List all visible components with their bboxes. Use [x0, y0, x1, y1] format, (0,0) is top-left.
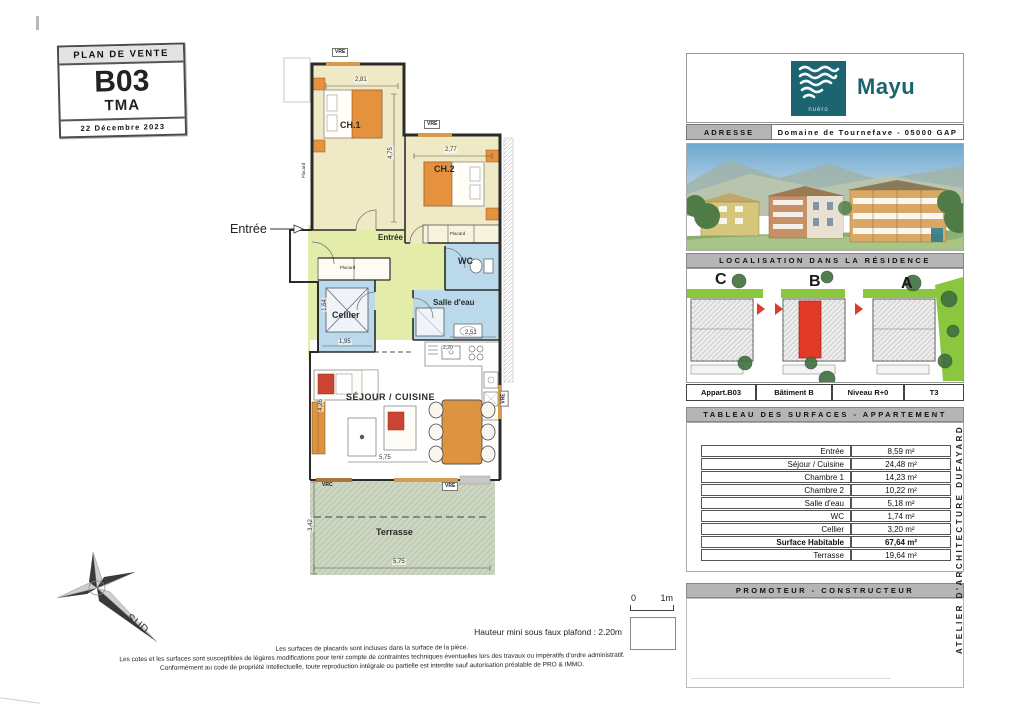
residence-rendering	[687, 144, 963, 250]
dim-ch1-height: 4,75	[388, 146, 394, 160]
address-label: ADRESSE	[686, 124, 772, 140]
surfaces-box: Entrée8,59 m² Séjour / Cuisine24,48 m² C…	[686, 422, 964, 572]
surface-label: Chambre 2	[701, 484, 851, 496]
surface-label: Salle d'eau	[701, 497, 851, 509]
table-row: Séjour / Cuisine24,48 m²	[701, 458, 951, 470]
scan-artifact	[0, 697, 40, 704]
surface-label: Cellier	[701, 523, 851, 535]
unit-number: B03	[59, 62, 184, 98]
plan-date: 22 Décembre 2023	[61, 116, 185, 136]
room-label-sejour: SÉJOUR / CUISINE	[346, 392, 435, 402]
scan-artifact	[691, 678, 891, 679]
title-block: PLAN DE VENTE B03 TMA 22 Décembre 2023	[57, 42, 187, 138]
waves-icon	[791, 61, 846, 107]
brand-name: Mayu	[857, 74, 915, 100]
dim-salle-eau-width: 2,51	[464, 330, 478, 336]
info-apartment: Appart.B03	[686, 384, 756, 401]
room-label-cellier: Cellier	[332, 310, 360, 320]
surface-value: 67,64 m²	[851, 536, 951, 548]
dim-cellier-height: 1,64	[322, 298, 328, 312]
info-building: Bâtiment B	[756, 384, 832, 401]
address-value: Domaine de Tournefave - 05000 GAP	[772, 124, 964, 140]
room-label-terrasse: Terrasse	[376, 527, 413, 537]
surfaces-header: TABLEAU DES SURFACES - APPARTEMENT	[686, 407, 964, 422]
surface-value: 14,23 m²	[851, 471, 951, 483]
dim-sejour-width: 5,75	[378, 455, 392, 461]
scale-bracket	[630, 605, 674, 611]
building-label-a: A	[901, 275, 913, 293]
surface-value: 3,20 m²	[851, 523, 951, 535]
window-tag-vre: VRE	[442, 482, 458, 491]
table-row: Cellier3,20 m²	[701, 523, 951, 535]
surface-label: Terrasse	[701, 549, 851, 561]
floor-plan: Entrée CH.1 CH.2 Entrée WC Salle d'eau C…	[228, 50, 540, 612]
dim-cellier-width: 1,95	[338, 339, 352, 345]
scale-one-meter: 1m	[660, 593, 673, 603]
logo-box: nuèro Mayu	[686, 53, 964, 123]
room-label-wc: WC	[458, 256, 473, 266]
room-label-ch1: CH.1	[340, 120, 361, 130]
surface-value: 5,18 m²	[851, 497, 951, 509]
building-label-c: C	[715, 271, 727, 289]
room-label-salle-eau: Salle d'eau	[433, 298, 474, 307]
table-row: Chambre 210,22 m²	[701, 484, 951, 496]
address-row: ADRESSE Domaine de Tournefave - 05000 GA…	[686, 124, 964, 140]
residence-photo	[686, 143, 964, 251]
surface-label: Séjour / Cuisine	[701, 458, 851, 470]
surface-value: 19,64 m²	[851, 549, 951, 561]
surface-value: 24,48 m²	[851, 458, 951, 470]
unit-variant: TMA	[60, 95, 184, 119]
logo-caption: nuèro	[791, 107, 846, 113]
siteplan: C B A	[686, 268, 964, 383]
siteplan-drawing	[687, 269, 963, 382]
info-level: Niveau R+0	[832, 384, 904, 401]
localisation-header: LOCALISATION DANS LA RÉSIDENCE	[686, 253, 964, 268]
plan-de-vente-sheet: PLAN DE VENTE B03 TMA 22 Décembre 2023	[0, 0, 1024, 723]
scale-bar: 0 1m	[630, 593, 674, 611]
surface-label: Chambre 1	[701, 471, 851, 483]
surfaces-table: Entrée8,59 m² Séjour / Cuisine24,48 m² C…	[701, 444, 951, 562]
scan-artifact	[36, 16, 39, 30]
placard-label: Placard	[450, 231, 465, 236]
surface-value: 1,74 m²	[851, 510, 951, 522]
entrance-label: Entrée	[230, 222, 267, 236]
surface-label: Surface Habitable	[701, 536, 851, 548]
surface-label: Entrée	[701, 445, 851, 457]
table-row: WC1,74 m²	[701, 510, 951, 522]
surface-label: WC	[701, 510, 851, 522]
placard-label: Placard	[301, 163, 306, 178]
dim-kitchen-width: 2,20	[442, 345, 454, 351]
surface-value: 8,59 m²	[851, 445, 951, 457]
promoter-box	[686, 598, 964, 688]
surface-value: 10,22 m²	[851, 484, 951, 496]
architect-sideline: ATELIER D'ARCHITECTURE DUFAYARD	[955, 387, 964, 692]
brand-logo-icon: nuèro	[791, 61, 846, 116]
dim-sejour-height: 4,26	[318, 398, 324, 412]
entrance-arrow-icon	[270, 224, 304, 234]
dim-terrasse-height: 3,42	[308, 518, 314, 532]
room-label-entree: Entrée	[378, 233, 403, 242]
room-label-ch2: CH.2	[434, 164, 455, 174]
table-row: Terrasse19,64 m²	[701, 549, 951, 561]
dim-terrasse-width: 5,75	[392, 559, 406, 565]
table-row: Salle d'eau5,18 m²	[701, 497, 951, 509]
window-tag-vre: VRE	[500, 390, 509, 406]
dim-ch1-width: 2,81	[354, 77, 368, 83]
building-label-b: B	[809, 273, 821, 291]
promoter-header: PROMOTEUR - CONSTRUCTEUR	[686, 583, 964, 598]
table-row: Entrée8,59 m²	[701, 445, 951, 457]
entrance-callout: Entrée	[230, 222, 304, 236]
ceiling-height-note: Hauteur mini sous faux plafond : 2.20m	[408, 627, 622, 637]
window-tag-vre: VRE	[424, 120, 440, 129]
window-tag-vrc: VRC	[320, 482, 335, 489]
compass-rose-icon	[55, 548, 170, 653]
scale-zero: 0	[631, 593, 636, 603]
window-tag-vre: VRE	[332, 48, 348, 57]
unit-info-row: Appart.B03 Bâtiment B Niveau R+0 T3	[686, 384, 964, 401]
dim-ch2-width: 2,77	[444, 147, 458, 153]
placard-label: Placard	[340, 265, 355, 270]
table-row: Chambre 114,23 m²	[701, 471, 951, 483]
table-row-total: Surface Habitable67,64 m²	[701, 536, 951, 548]
